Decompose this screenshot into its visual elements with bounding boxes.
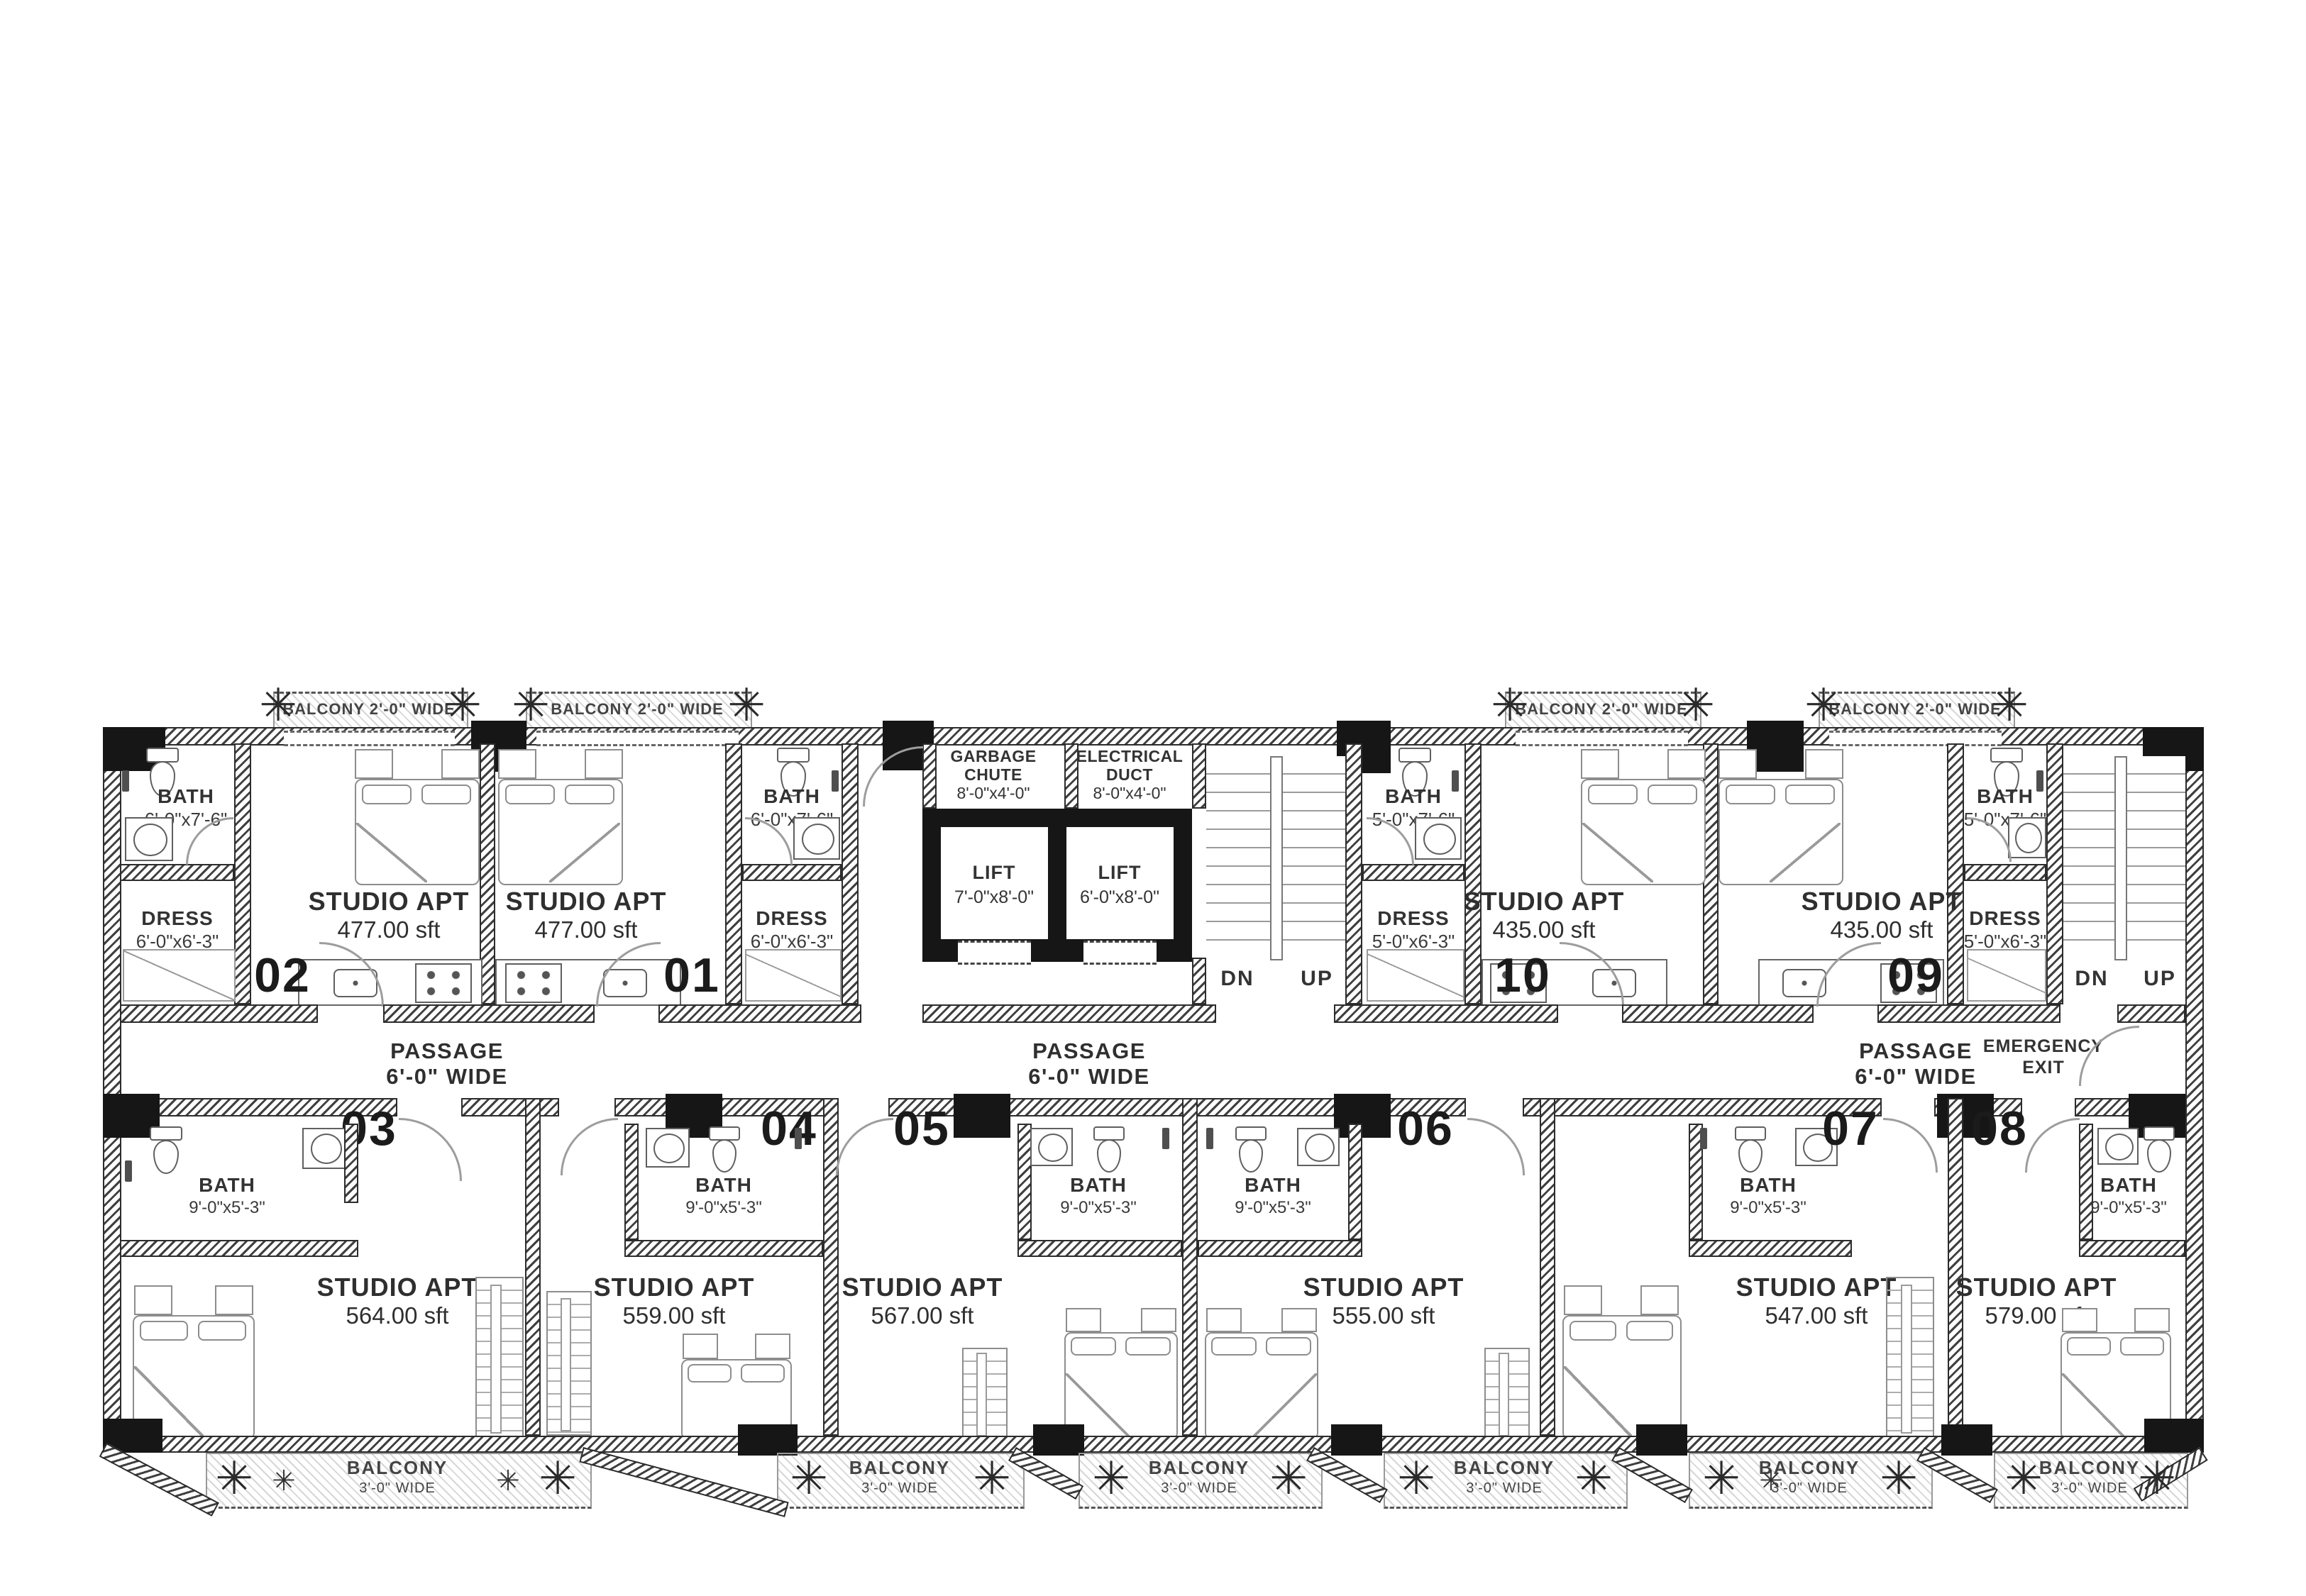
sink-icon — [1415, 817, 1462, 860]
wall-bath04 — [624, 1240, 823, 1257]
bed-headboard — [1066, 1308, 1101, 1332]
unit01-area: 477.00 sft — [535, 918, 638, 943]
balcony-angled-wall — [579, 1447, 788, 1517]
passage-label-left-2: 6'-0" WIDE — [386, 1065, 507, 1089]
exterior-wall-bottom — [103, 1436, 2204, 1453]
wall-chute-left — [922, 743, 937, 809]
balcony-top-4-label: BALCONY 2'-0" WIDE — [1828, 701, 2002, 717]
unit02-area: 477.00 sft — [338, 918, 441, 943]
plant-icon: ✳ — [1092, 1456, 1130, 1501]
unit09-dress-label: DRESS — [1969, 908, 2041, 929]
plant-icon: ✳ — [272, 1467, 296, 1495]
bed-headboard — [755, 1334, 790, 1359]
shower-icon — [1206, 1128, 1213, 1149]
wall-unit09-stairs — [2046, 743, 2063, 1004]
shower-icon — [1700, 1128, 1707, 1149]
wardrobe — [546, 1291, 592, 1436]
lift-door — [1083, 941, 1157, 965]
bed — [1581, 779, 1706, 885]
plant-icon: ✳ — [1880, 1456, 1918, 1501]
unit06-type: STUDIO APT — [1303, 1274, 1464, 1301]
column — [738, 1424, 798, 1456]
wall-lift-lobby — [1192, 958, 1206, 1004]
unit07-type: STUDIO APT — [1736, 1274, 1897, 1301]
unit03-area: 564.00 sft — [346, 1304, 449, 1329]
door-arc — [1560, 942, 1624, 1007]
emergency-exit-door-arc — [2079, 1026, 2139, 1086]
unit07-area: 547.00 sft — [1765, 1304, 1868, 1329]
unit09-bath-label: BATH — [1977, 786, 2034, 807]
wall-unit03-04-divider — [525, 1098, 541, 1436]
electrical-duct-size: 8'-0"x4'-0" — [1093, 785, 1166, 802]
balcony-top-1-label: BALCONY 2'-0" WIDE — [282, 701, 456, 717]
wall-unit02-service — [234, 743, 251, 1004]
unit07-bath-label: BATH — [1740, 1175, 1797, 1195]
bed-headboard — [1206, 1308, 1242, 1332]
wall-bath03-side — [344, 1124, 358, 1203]
unit09-area: 435.00 sft — [1831, 918, 1933, 943]
plant-icon: ✳ — [973, 1456, 1011, 1501]
bed — [498, 779, 623, 885]
dress-mirror — [123, 949, 236, 1002]
sink-icon — [302, 1128, 348, 1169]
unit03-type: STUDIO APT — [317, 1274, 478, 1301]
passage-wall — [2117, 1004, 2185, 1023]
garbage-chute-line1: GARBAGE — [950, 748, 1036, 765]
wall-unit01-service — [725, 743, 742, 1004]
bed-headboard — [215, 1285, 253, 1315]
balcony-bottom-1-line1: BALCONY — [347, 1458, 448, 1478]
unit07-bath-size: 9'-0"x5'-3" — [1730, 1199, 1806, 1217]
passage-label-center-2: 6'-0" WIDE — [1028, 1065, 1149, 1089]
unit01-dress-label: DRESS — [756, 908, 827, 929]
door-arc — [596, 942, 661, 1007]
unit02-dress-label: DRESS — [141, 908, 213, 929]
wall-unit05-06-divider — [1182, 1098, 1198, 1436]
balcony-bottom-3-line2: 3'-0" WIDE — [1161, 1481, 1237, 1496]
bed-headboard — [683, 1334, 718, 1359]
wall-bath-dress-09 — [1964, 864, 2046, 881]
sink-icon — [1030, 1128, 1073, 1166]
unit10-number: 10 — [1494, 951, 1551, 1001]
wall-unit06-07-divider — [1540, 1098, 1555, 1436]
column — [1636, 1424, 1687, 1456]
unit05-bath-label: BATH — [1070, 1175, 1127, 1195]
balcony-top-2-label: BALCONY 2'-0" WIDE — [551, 701, 724, 717]
wardrobe — [475, 1277, 524, 1439]
dress-mirror — [745, 949, 842, 1002]
plant-icon: ✳ — [727, 682, 766, 728]
plant-icon: ✳ — [1702, 1456, 1740, 1501]
plant-icon: ✳ — [1759, 1467, 1783, 1495]
plant-icon: ✳ — [496, 1467, 520, 1495]
bed — [355, 779, 480, 885]
sink-icon — [2097, 1128, 2139, 1165]
sink-icon — [793, 817, 840, 860]
balcony-opening — [536, 731, 739, 746]
wall-bath08-side — [2079, 1124, 2093, 1240]
shower-icon — [795, 1128, 802, 1149]
unit04-area: 559.00 sft — [623, 1304, 726, 1329]
bed-headboard — [2134, 1308, 2170, 1332]
wall-unit01-lobby — [842, 743, 859, 1004]
dress-mirror — [1367, 949, 1464, 1002]
wall-bath07 — [1689, 1240, 1852, 1257]
unit07-number: 07 — [1822, 1104, 1879, 1154]
passage-wall — [383, 1004, 595, 1023]
wall-bath06 — [1198, 1240, 1362, 1257]
wall-bath-dress-01 — [742, 864, 842, 881]
bed-headboard — [134, 1285, 172, 1315]
wall-bath06-side — [1348, 1124, 1362, 1240]
sink-icon — [2008, 817, 2046, 858]
balcony-bottom-4-line1: BALCONY — [1454, 1458, 1555, 1478]
bed-headboard — [1805, 749, 1843, 779]
plant-icon: ✳ — [2138, 1456, 2176, 1501]
bed-headboard — [1281, 1308, 1317, 1332]
unit05-type: STUDIO APT — [842, 1274, 1003, 1301]
balcony-top-3-label: BALCONY 2'-0" WIDE — [1515, 701, 1688, 717]
stairs-center-up: UP — [1301, 968, 1333, 990]
balcony-bottom-2-line2: 3'-0" WIDE — [861, 1481, 938, 1496]
unit02-bath-label: BATH — [158, 786, 214, 807]
unit10-type: STUDIO APT — [1464, 888, 1625, 915]
plant-icon: ✳ — [259, 682, 297, 728]
electrical-duct-line1: ELECTRICAL — [1076, 748, 1184, 765]
plant-icon: ✳ — [1990, 682, 2029, 728]
passage-wall — [1877, 1004, 2060, 1023]
balcony-bottom-3-line1: BALCONY — [1149, 1458, 1250, 1478]
emergency-exit-line1: EMERGENCY — [1983, 1037, 2104, 1055]
unit08-bath-size: 9'-0"x5'-3" — [2090, 1199, 2167, 1217]
toilet-icon — [149, 1126, 180, 1172]
wardrobe — [962, 1348, 1008, 1439]
passage-wall — [1622, 1004, 1814, 1023]
unit06-bath-size: 9'-0"x5'-3" — [1235, 1199, 1311, 1217]
bed — [1205, 1332, 1318, 1440]
door-arc — [1816, 942, 1881, 1007]
unit06-bath-label: BATH — [1245, 1175, 1301, 1195]
passage-label-right-2: 6'-0" WIDE — [1855, 1065, 1976, 1089]
plant-icon: ✳ — [1574, 1456, 1613, 1501]
passage-wall — [922, 1004, 1216, 1023]
unit08-number: 08 — [1971, 1104, 2028, 1154]
unit04-bath-size: 9'-0"x5'-3" — [685, 1199, 762, 1217]
shower-icon — [125, 1160, 132, 1182]
door-arc — [2025, 1118, 2080, 1173]
shower-icon — [2036, 770, 2043, 792]
plant-icon: ✳ — [2004, 1456, 2043, 1501]
lift-a-size: 7'-0"x8'-0" — [954, 888, 1034, 907]
toilet-icon — [708, 1126, 738, 1170]
lift-car-b — [1066, 827, 1174, 939]
unit03-bath-label: BATH — [199, 1175, 255, 1195]
plant-icon: ✳ — [1677, 682, 1715, 728]
lift-b-label: LIFT — [1098, 863, 1142, 882]
toilet-icon — [1235, 1126, 1264, 1170]
bed-headboard — [441, 749, 480, 779]
unit10-dress-label: DRESS — [1377, 908, 1449, 929]
unit03-bath-size: 9'-0"x5'-3" — [189, 1199, 265, 1217]
electrical-duct-line2: DUCT — [1106, 766, 1153, 783]
wall-unit07-08-divider — [1948, 1098, 1963, 1436]
bed — [1562, 1315, 1682, 1440]
stairs-right-up: UP — [2144, 968, 2176, 990]
sink-icon — [125, 817, 173, 861]
unit01-number: 01 — [663, 951, 720, 1001]
balcony-bottom-2-line1: BALCONY — [849, 1458, 951, 1478]
stairs-right-dn: DN — [2075, 968, 2108, 990]
stove-icon — [415, 963, 472, 1003]
shower-icon — [122, 770, 129, 792]
wardrobe — [1484, 1348, 1530, 1439]
door-arc — [836, 1118, 893, 1175]
unit02-number: 02 — [254, 951, 311, 1001]
column — [1033, 1424, 1084, 1456]
shower-icon — [1452, 770, 1459, 792]
unit10-area: 435.00 sft — [1493, 918, 1596, 943]
plant-icon: ✳ — [1491, 682, 1529, 728]
passage-wall — [658, 1004, 861, 1023]
unit05-number: 05 — [893, 1104, 950, 1154]
shower-icon — [1162, 1128, 1169, 1149]
unit06-area: 555.00 sft — [1333, 1304, 1435, 1329]
bed-headboard — [498, 749, 536, 779]
bed-headboard — [1640, 1285, 1679, 1315]
wall-unit10-service — [1464, 743, 1482, 1004]
emergency-exit-line2: EXIT — [2022, 1058, 2065, 1077]
garbage-chute-line2: CHUTE — [964, 766, 1022, 783]
plant-icon: ✳ — [539, 1456, 577, 1501]
bed-headboard — [355, 749, 393, 779]
balcony-opening — [284, 731, 455, 746]
unit04-type: STUDIO APT — [594, 1274, 755, 1301]
wall-bath04-side — [624, 1124, 639, 1240]
column — [1334, 1094, 1391, 1138]
wall-duct-stairs — [1192, 743, 1206, 809]
bed-headboard — [585, 749, 623, 779]
wall-bath05 — [1017, 1240, 1182, 1257]
wall-bath05-side — [1017, 1124, 1032, 1240]
balcony-bottom-6-line1: BALCONY — [2039, 1458, 2141, 1478]
plant-icon: ✳ — [1804, 682, 1843, 728]
door-arc — [319, 942, 384, 1007]
wall-stairs-unit10 — [1345, 743, 1362, 1004]
door-arc — [1467, 1118, 1525, 1175]
unit04-bath-label: BATH — [695, 1175, 752, 1195]
unit09-type: STUDIO APT — [1802, 888, 1963, 915]
stove-icon — [505, 963, 562, 1003]
passage-label-right-1: PASSAGE — [1859, 1040, 1973, 1063]
unit08-bath-label: BATH — [2100, 1175, 2157, 1195]
stair-rail — [1270, 756, 1283, 960]
balcony-bottom-6-line2: 3'-0" WIDE — [2051, 1481, 2128, 1496]
door-arc — [561, 1118, 618, 1175]
wall-unit04-05-divider — [823, 1098, 839, 1436]
passage-wall — [461, 1098, 559, 1116]
bed-headboard — [1719, 749, 1757, 779]
unit05-area: 567.00 sft — [871, 1304, 974, 1329]
column — [2144, 1419, 2204, 1453]
lift-door — [958, 941, 1031, 965]
plant-icon: ✳ — [215, 1456, 253, 1501]
unit08-type: STUDIO APT — [1956, 1274, 2117, 1301]
stairs-center-dn: DN — [1220, 968, 1254, 990]
door-arc — [399, 1118, 462, 1181]
garbage-chute-size: 8'-0"x4'-0" — [956, 785, 1030, 802]
sink-icon — [1297, 1128, 1340, 1166]
balcony-bottom-4-line2: 3'-0" WIDE — [1466, 1481, 1543, 1496]
stair-rail — [2114, 756, 2127, 960]
column — [954, 1094, 1010, 1138]
unit01-bath-label: BATH — [763, 786, 820, 807]
exterior-wall-left — [103, 727, 121, 1453]
passage-wall — [1334, 1004, 1558, 1023]
door-arc — [1883, 1118, 1938, 1173]
passage-wall — [120, 1004, 318, 1023]
bed — [1719, 779, 1843, 885]
floor-plan-sheet: BALCONY 2'-0" WIDE BALCONY 2'-0" WIDE BA… — [0, 0, 2306, 1596]
wall-bath-dress-10 — [1362, 864, 1464, 881]
unit10-bath-label: BATH — [1385, 786, 1442, 807]
passage-label-center-1: PASSAGE — [1032, 1040, 1146, 1063]
shower-icon — [832, 770, 839, 792]
wall-bath08 — [2079, 1240, 2185, 1257]
column — [1941, 1424, 1992, 1456]
bed-headboard — [1564, 1285, 1602, 1315]
plant-icon: ✳ — [790, 1456, 828, 1501]
lift-car-a — [941, 827, 1048, 939]
door-arc — [863, 746, 923, 807]
toilet-icon — [1734, 1126, 1764, 1170]
unit05-bath-size: 9'-0"x5'-3" — [1060, 1199, 1137, 1217]
balcony-opening — [1516, 731, 1688, 746]
plant-icon: ✳ — [1397, 1456, 1435, 1501]
unit06-number: 06 — [1397, 1104, 1454, 1154]
sink-icon — [646, 1128, 690, 1168]
bed-headboard — [2062, 1308, 2097, 1332]
plant-icon: ✳ — [1269, 1456, 1308, 1501]
bed-headboard — [1141, 1308, 1176, 1332]
lift-a-label: LIFT — [973, 863, 1016, 882]
unit09-number: 09 — [1887, 951, 1944, 1001]
dress-mirror — [1967, 949, 2046, 1002]
column — [1331, 1424, 1382, 1456]
toilet-icon — [1093, 1126, 1122, 1170]
wall-bath03 — [120, 1240, 358, 1257]
unit01-type: STUDIO APT — [506, 888, 667, 915]
wardrobe — [1886, 1277, 1934, 1439]
wall-bath-dress-02 — [120, 864, 234, 881]
wall-unit09-service — [1947, 743, 1964, 1004]
exterior-wall-right — [2185, 727, 2204, 1453]
lift-b-size: 6'-0"x8'-0" — [1080, 888, 1159, 907]
balcony-angled-wall — [99, 1443, 219, 1517]
unit04-number: 04 — [761, 1104, 817, 1154]
balcony-opening — [1829, 731, 2002, 746]
passage-label-left-1: PASSAGE — [390, 1040, 504, 1063]
toilet-icon — [2143, 1126, 2173, 1170]
bed-headboard — [1667, 749, 1706, 779]
unit02-type: STUDIO APT — [309, 888, 470, 915]
bed-headboard — [1581, 749, 1619, 779]
balcony-bottom-1-line2: 3'-0" WIDE — [359, 1481, 436, 1496]
